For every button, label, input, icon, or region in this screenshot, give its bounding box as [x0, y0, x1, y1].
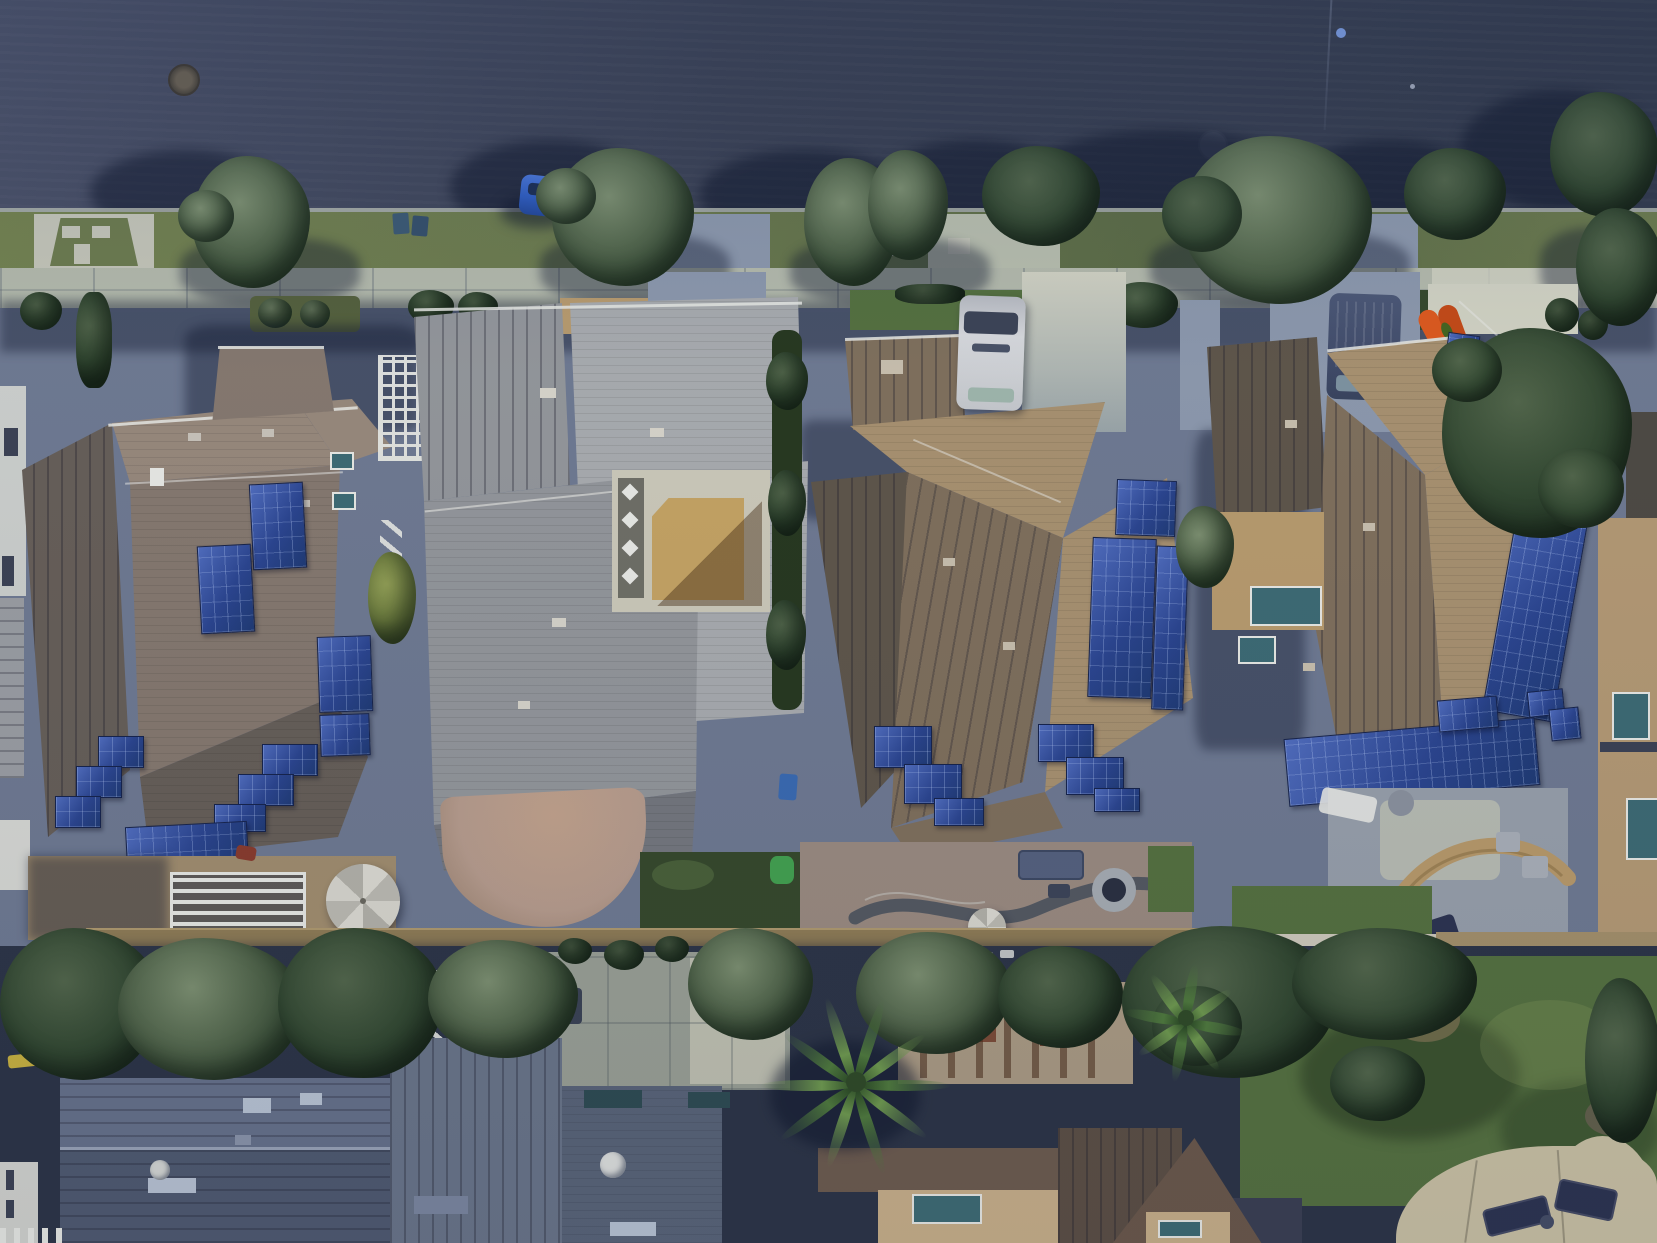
apron-pad	[62, 226, 80, 238]
rear-wall-right	[1436, 932, 1657, 946]
solar-array-step	[262, 744, 318, 776]
house-4-vent	[1363, 523, 1375, 531]
white-fence-bottom	[0, 1228, 64, 1243]
solar-array-extension	[1437, 695, 1500, 732]
satellite-dish	[600, 1152, 626, 1178]
yellow-green-tree	[368, 552, 416, 644]
rear-house-window	[610, 1222, 656, 1236]
house-1-chimney	[150, 468, 164, 486]
solar-array-step	[76, 766, 122, 798]
lawn-edge-tree	[1585, 978, 1657, 1143]
solar-array	[1115, 479, 1177, 537]
house-4-entry-window	[1250, 586, 1322, 626]
side-hedge-lump	[766, 352, 808, 410]
rear-house-roof-lower	[60, 1150, 392, 1243]
solar-array	[317, 635, 374, 713]
courtyard-shadow	[652, 498, 762, 606]
apron-pad	[92, 226, 110, 238]
porch-roof-edge	[218, 346, 324, 349]
street-tree	[868, 150, 948, 260]
solar-array-step	[874, 726, 932, 768]
house-3-garage-vent	[881, 360, 903, 374]
rear-house-window	[148, 1178, 196, 1193]
house-4-entry-window-small	[1238, 636, 1276, 664]
trash-bin	[411, 215, 429, 236]
round-table	[1388, 790, 1414, 816]
house-1-side-window	[330, 452, 354, 470]
satellite-dish	[150, 1160, 170, 1180]
outdoor-sofa	[1018, 850, 1084, 880]
house-1-vent	[188, 433, 201, 441]
solar-array	[249, 482, 307, 571]
manhole-cover	[168, 64, 200, 96]
palm-tree-small	[1120, 955, 1250, 1085]
round-bush	[604, 940, 644, 970]
solar-array	[319, 713, 370, 757]
solar-array-step	[55, 796, 101, 828]
skylight	[243, 1098, 271, 1113]
white-van-rear-window	[968, 387, 1014, 403]
side-hedge-lump	[768, 470, 806, 536]
solar-array-step	[1094, 788, 1140, 812]
house-1-vent	[262, 429, 274, 437]
planter-grasses	[300, 300, 330, 328]
ac-unit	[1496, 832, 1520, 852]
white-van-windshield	[964, 311, 1019, 335]
house-3-vent	[943, 558, 955, 566]
right-neighbor-window	[1612, 692, 1650, 740]
street-tree-large	[1182, 136, 1372, 304]
corner-house-window	[1158, 1220, 1202, 1238]
house-2-vent	[540, 388, 556, 398]
planter-grasses	[258, 298, 292, 328]
right-neighbor-window	[1626, 798, 1657, 860]
street-tree	[1404, 148, 1506, 240]
outdoor-table	[1048, 884, 1070, 898]
solar-array	[197, 544, 256, 635]
solar-array-step	[934, 798, 984, 826]
white-van-sunroof	[972, 343, 1010, 352]
house-3-vent	[1003, 642, 1015, 650]
solar-array	[1087, 537, 1157, 699]
white-patio-chair	[1000, 950, 1014, 958]
roof-slot	[6, 1170, 14, 1190]
right-neighbor-balcony	[1600, 742, 1657, 752]
backyard-tree	[998, 946, 1123, 1048]
street-tree	[1576, 208, 1657, 326]
roof-slot	[6, 1200, 14, 1218]
backyard-tree	[428, 940, 578, 1058]
house-2-vent	[518, 701, 530, 709]
rear-house-roof-upper	[60, 1078, 392, 1150]
backyard-tree	[278, 928, 443, 1078]
house-4-vent	[1285, 420, 1297, 428]
house3-front-hedge	[895, 284, 965, 304]
solar-array-step	[98, 736, 144, 768]
aerial-photo	[0, 0, 1657, 1243]
rear-house-window	[912, 1194, 982, 1224]
palm-crown	[846, 1072, 866, 1092]
skylight	[300, 1093, 322, 1105]
house-2-vent	[650, 428, 664, 437]
round-bush	[655, 936, 689, 962]
house-1-front-porch-roof	[210, 346, 334, 420]
side-table	[1540, 1215, 1554, 1229]
skylight-teal	[688, 1092, 730, 1108]
backyard-tree	[118, 938, 303, 1080]
lawn-bush	[1330, 1046, 1425, 1121]
apron-pad	[74, 244, 90, 264]
house-3-lawn-sliver	[1148, 846, 1194, 912]
road-speck	[1410, 84, 1415, 89]
overhanging-tree	[1442, 328, 1632, 538]
ac-unit	[1522, 856, 1548, 878]
side-hedge-lump	[766, 600, 806, 670]
street-tree	[982, 146, 1100, 246]
umbrella-pole	[360, 898, 366, 904]
green-play-slide	[770, 856, 794, 884]
trash-bin	[392, 212, 409, 234]
front-hedge	[76, 292, 112, 388]
house-1-side-window	[332, 492, 356, 510]
house-4-vent	[1303, 663, 1315, 671]
palm-crown	[1178, 1010, 1194, 1026]
chimney-vent	[235, 1135, 251, 1145]
front-hedge	[20, 292, 62, 330]
street-tree	[552, 148, 694, 286]
blue-reflector-dot	[1336, 28, 1346, 38]
solar-array-step	[238, 774, 294, 806]
rear-house-ridge	[60, 1147, 392, 1150]
entry-tree	[1176, 506, 1234, 588]
house-2-vent	[552, 618, 566, 627]
street-tree	[192, 156, 310, 288]
solar-array-small	[1548, 707, 1581, 742]
lawn-light-patch	[652, 860, 714, 890]
rear-house-dormer	[414, 1196, 468, 1214]
round-bush	[558, 938, 592, 964]
palm-tree	[760, 990, 950, 1180]
rear-house-roof-right	[562, 1086, 722, 1243]
lawn-edge-tree	[1292, 928, 1477, 1040]
skylight-teal	[584, 1090, 642, 1108]
street-tree	[1550, 92, 1657, 217]
fire-pit-center	[1102, 878, 1126, 902]
